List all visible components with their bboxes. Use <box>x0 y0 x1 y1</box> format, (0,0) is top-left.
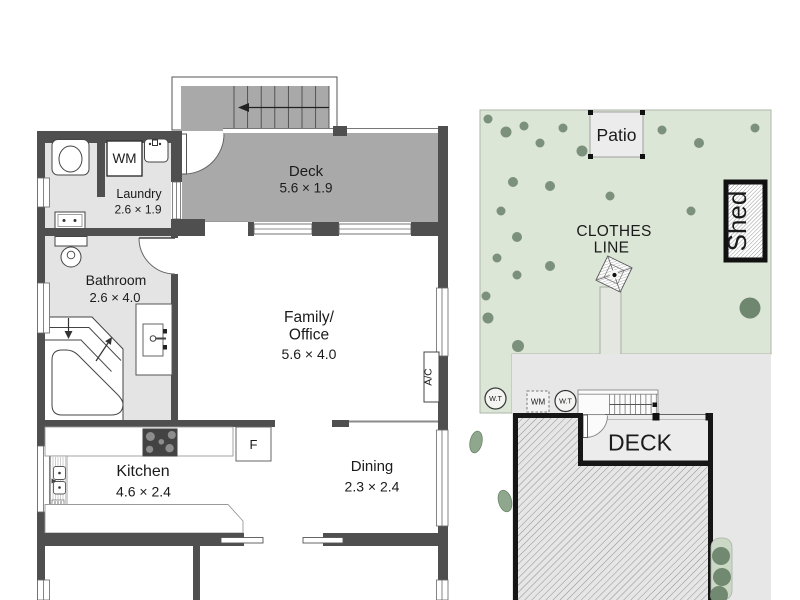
svg-text:A/C: A/C <box>423 368 435 386</box>
svg-text:W.T: W.T <box>559 397 572 406</box>
svg-text:5.6 × 1.9: 5.6 × 1.9 <box>280 181 333 196</box>
svg-text:2.6 × 1.9: 2.6 × 1.9 <box>114 203 161 217</box>
svg-text:LINE: LINE <box>594 240 630 257</box>
svg-text:Deck: Deck <box>289 163 324 180</box>
svg-text:Family/: Family/ <box>284 309 335 326</box>
svg-text:F: F <box>250 437 258 452</box>
svg-text:2.3 × 2.4: 2.3 × 2.4 <box>345 479 400 495</box>
svg-text:Dining: Dining <box>351 458 394 475</box>
svg-text:DECK: DECK <box>608 430 673 456</box>
svg-text:Laundry: Laundry <box>116 187 162 201</box>
svg-text:WM: WM <box>531 398 546 407</box>
svg-text:4.6 × 2.4: 4.6 × 2.4 <box>116 484 171 500</box>
svg-text:Shed: Shed <box>722 191 752 252</box>
svg-text:Bathroom: Bathroom <box>86 272 147 288</box>
svg-text:Office: Office <box>289 327 329 344</box>
svg-text:CLOTHES: CLOTHES <box>576 223 651 240</box>
svg-text:W.T: W.T <box>489 394 502 403</box>
svg-text:Patio: Patio <box>597 125 637 145</box>
svg-text:2.6 × 4.0: 2.6 × 4.0 <box>90 290 141 305</box>
svg-text:Kitchen: Kitchen <box>116 463 169 480</box>
svg-text:5.6 × 4.0: 5.6 × 4.0 <box>282 346 337 362</box>
svg-text:WM: WM <box>113 151 137 166</box>
